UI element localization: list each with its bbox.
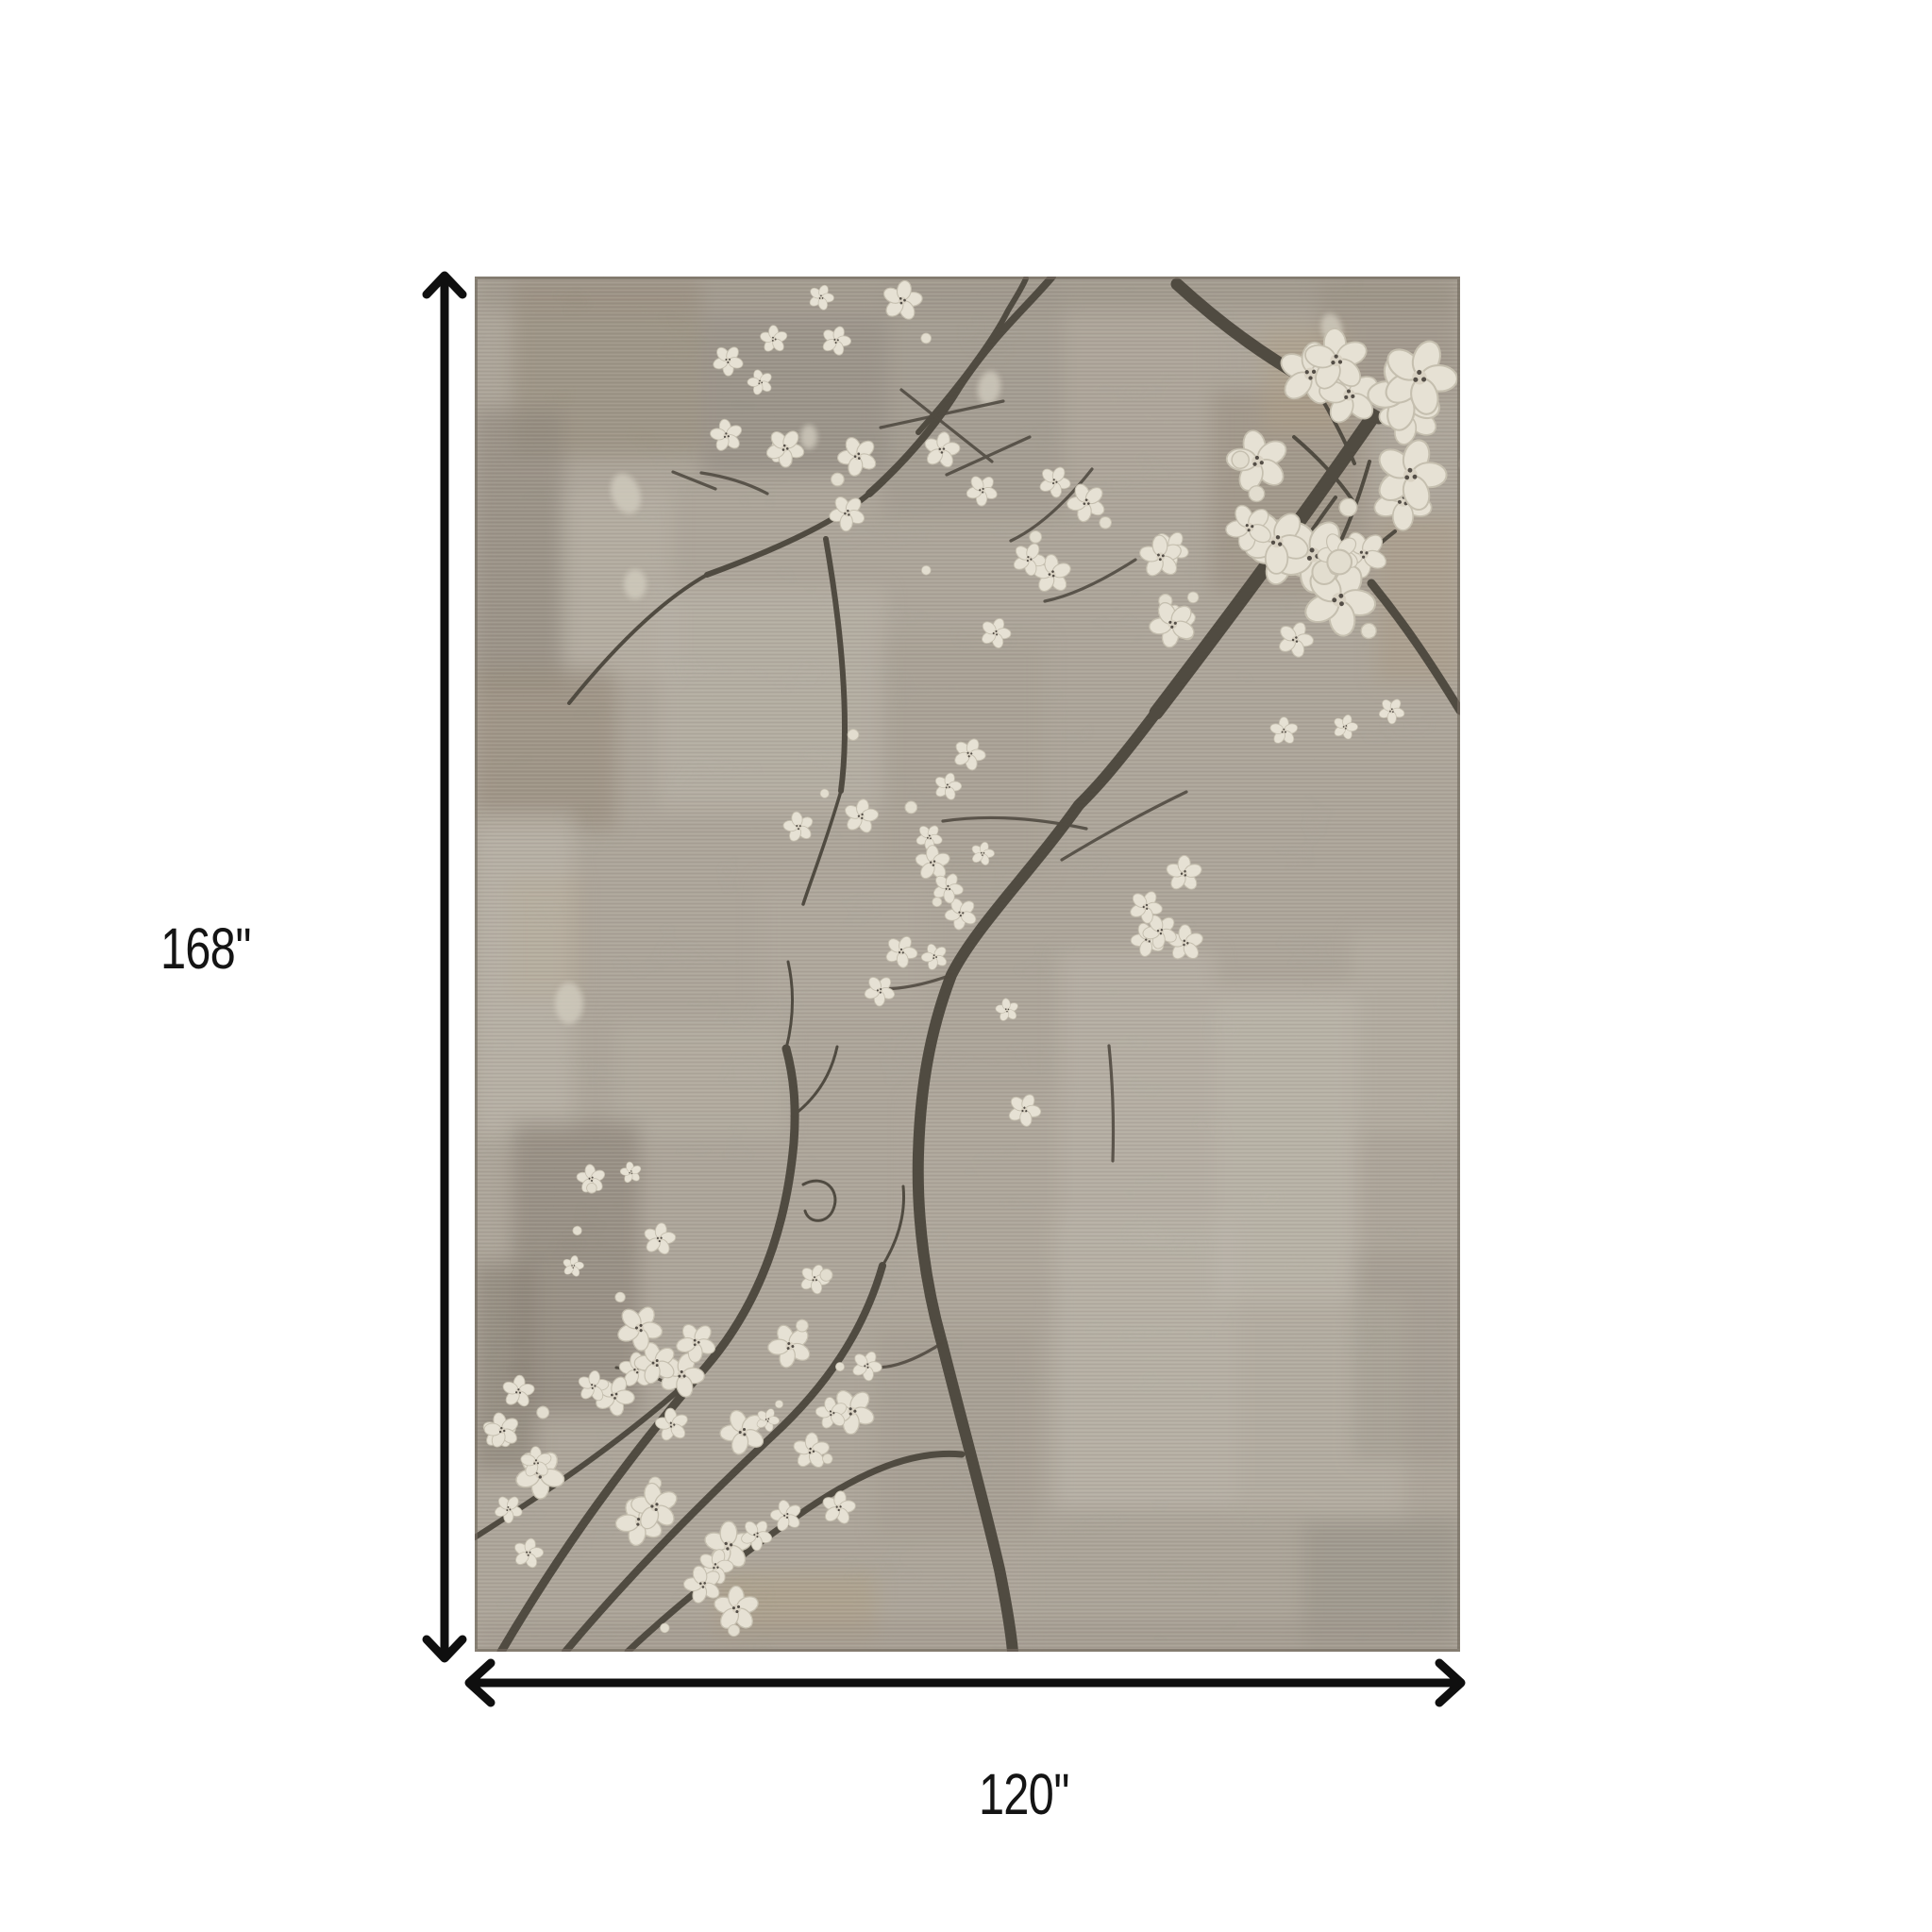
rug-image: [475, 277, 1460, 1652]
height-dimension-label: 168'': [138, 918, 274, 979]
rug-artwork: [475, 277, 1460, 1652]
product-dimension-diagram: 168'' 120'': [0, 0, 1932, 1932]
horizontal-double-arrow-icon: [462, 1647, 1472, 1722]
width-dimension-label: 120'': [949, 1764, 1100, 1824]
vertical-double-arrow-icon: [406, 260, 486, 1675]
